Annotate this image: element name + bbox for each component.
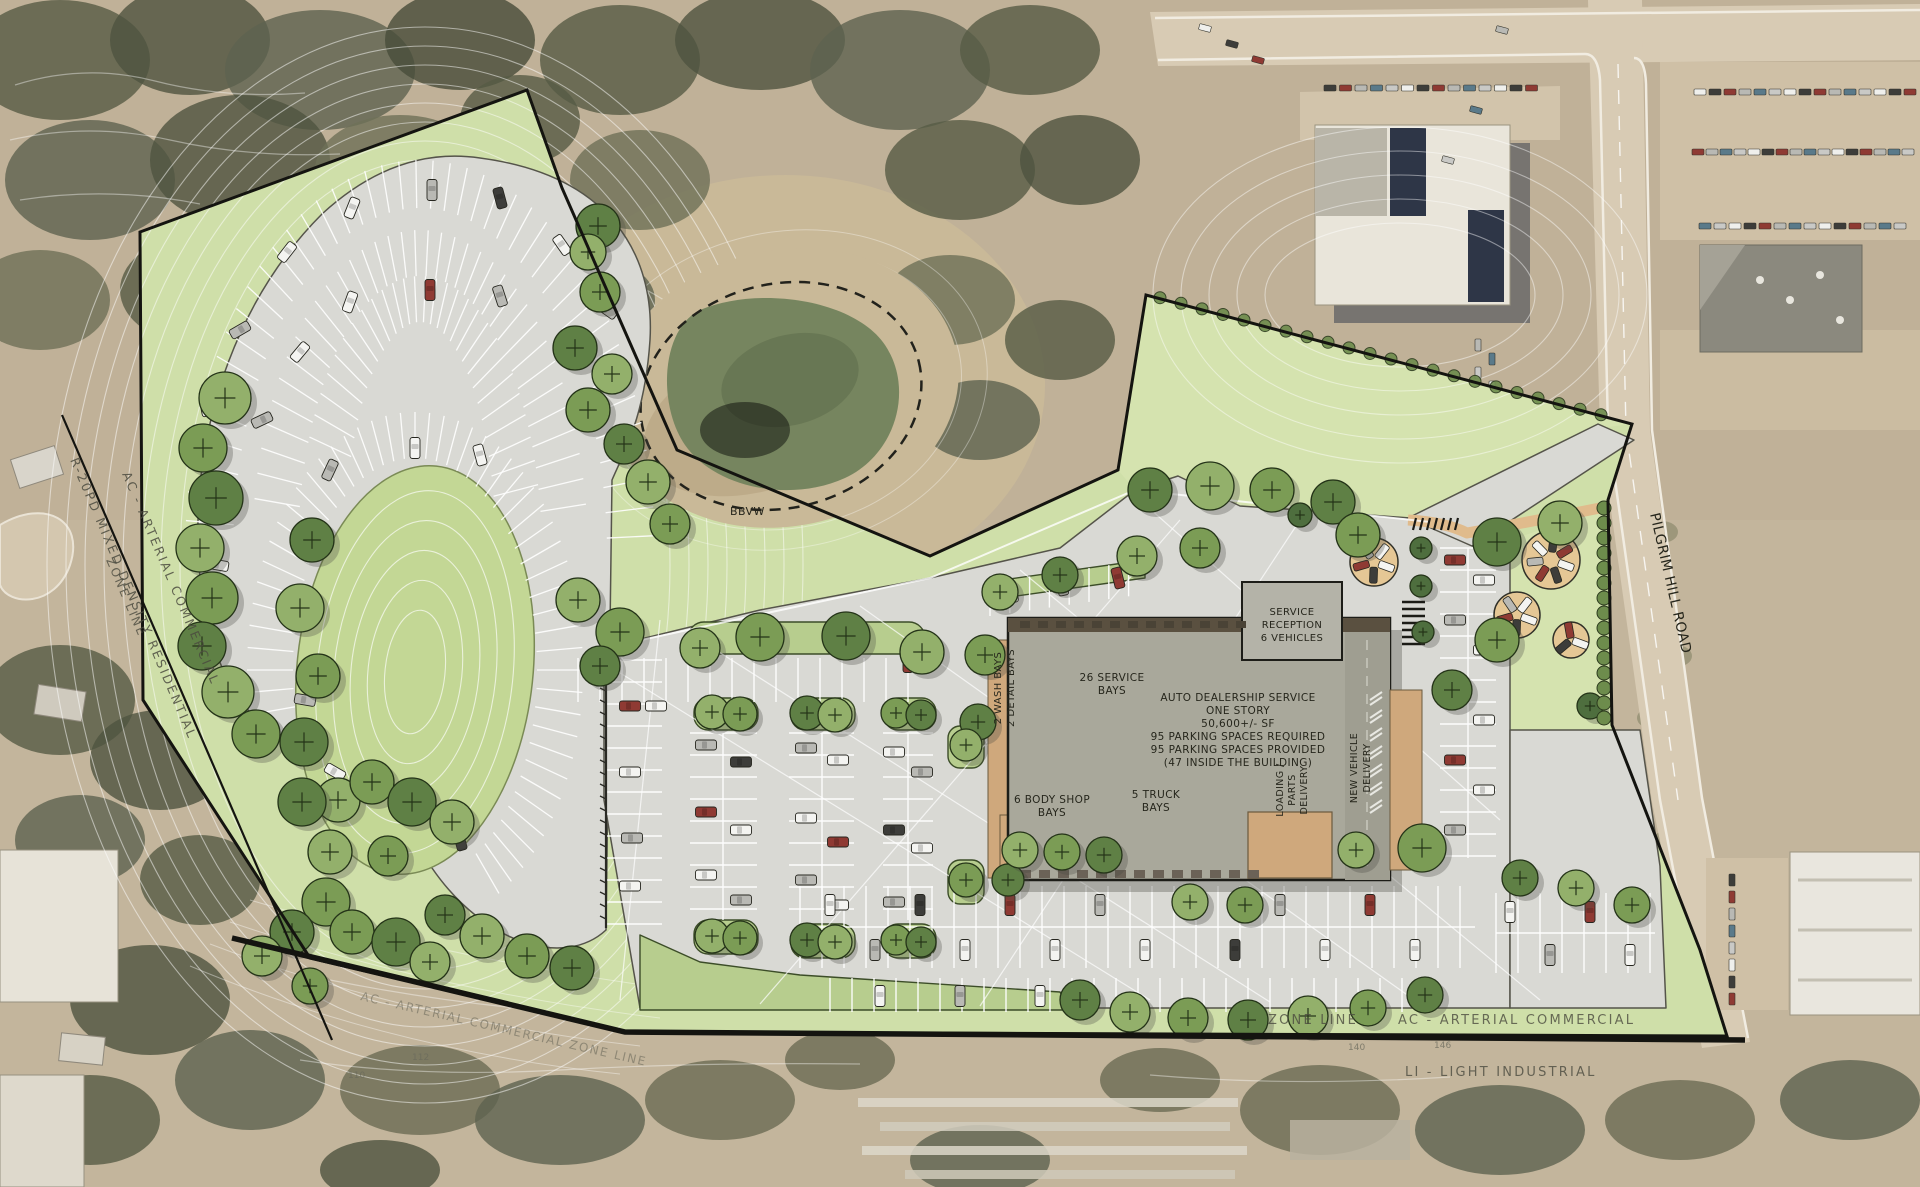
svg-text:DELIVERY: DELIVERY (1299, 766, 1310, 815)
svg-text:5 TRUCK: 5 TRUCK (1132, 789, 1181, 801)
building-info-line: AUTO DEALERSHIP SERVICE (1160, 692, 1315, 704)
svg-text:26 SERVICE: 26 SERVICE (1080, 672, 1145, 684)
svg-text:2 DETAIL BAYS: 2 DETAIL BAYS (1006, 649, 1017, 727)
loading-dock (1248, 812, 1332, 878)
svg-text:DELIVERY: DELIVERY (1362, 744, 1373, 793)
zone-south-line: ZONE LINE (1268, 1013, 1358, 1028)
svg-text:LOADING /: LOADING / (1275, 763, 1286, 817)
svg-text:2 WASH BAYS: 2 WASH BAYS (993, 652, 1004, 725)
svg-text:BAYS: BAYS (1098, 685, 1126, 697)
wetland-label: BBVW (730, 505, 765, 518)
svg-text:NEW VEHICLE: NEW VEHICLE (1349, 733, 1360, 803)
site-plan-canvas: AUTO DEALERSHIP SERVICE ONE STORY 50,600… (0, 0, 1920, 1187)
building-info-line: 95 PARKING SPACES PROVIDED (1151, 744, 1326, 756)
contour-label: 140 (1348, 1043, 1365, 1053)
site-plan-image: AUTO DEALERSHIP SERVICE ONE STORY 50,600… (0, 0, 1920, 1187)
svg-text:PARTS: PARTS (1287, 774, 1298, 805)
svg-text:6 VEHICLES: 6 VEHICLES (1261, 633, 1323, 644)
reception-label: SERVICE RECEPTION 6 VEHICLES (1261, 607, 1323, 644)
zone-south-industrial: LI - LIGHT INDUSTRIAL (1405, 1065, 1597, 1080)
contour-label: 146 (1434, 1041, 1451, 1051)
svg-text:RECEPTION: RECEPTION (1262, 620, 1323, 631)
building-info-line: (47 INSIDE THE BUILDING) (1164, 757, 1313, 769)
svg-text:6 BODY SHOP: 6 BODY SHOP (1014, 794, 1090, 806)
svg-text:BAYS: BAYS (1038, 807, 1066, 819)
building-info-line: ONE STORY (1206, 705, 1270, 717)
contour-label: 110 (348, 1071, 365, 1081)
building-info-line: 50,600+/- SF (1201, 718, 1275, 730)
building-info-line: 95 PARKING SPACES REQUIRED (1151, 731, 1326, 743)
zone-south-commercial: AC - ARTERIAL COMMERCIAL (1398, 1013, 1635, 1028)
contour-label: 112 (412, 1053, 429, 1063)
svg-text:BAYS: BAYS (1142, 802, 1170, 814)
building-info-label: AUTO DEALERSHIP SERVICE ONE STORY 50,600… (1151, 692, 1326, 769)
svg-text:SERVICE: SERVICE (1270, 607, 1315, 618)
